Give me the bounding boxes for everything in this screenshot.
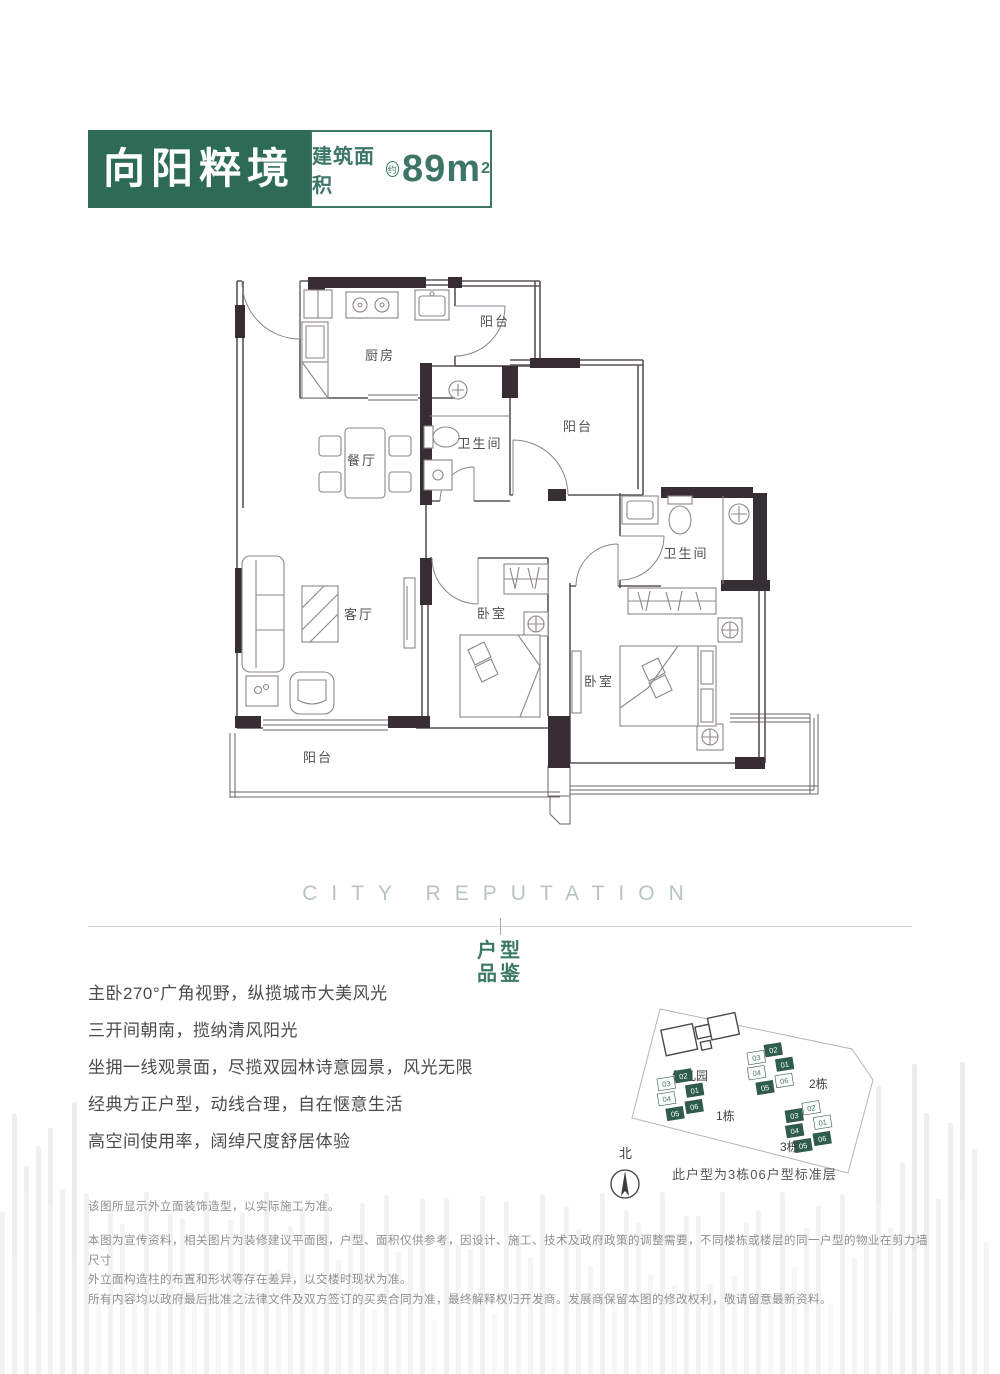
disclaimer-line: 所有内容均以政府最后批准之法律文件及双方签订的买卖合同为准，最终解释权归开发商。… <box>88 1291 938 1311</box>
svg-text:03: 03 <box>790 1111 800 1121</box>
dining-label: 餐厅 <box>347 453 377 468</box>
project-name-banner: 向阳粹境 <box>88 130 310 208</box>
bedroom2-furniture <box>572 588 742 750</box>
flyer-page: 向阳粹境 建筑面积 约 89m 2 <box>0 0 1000 1374</box>
english-subtitle: CITY REPUTATION <box>0 882 1000 906</box>
floor-plan: 厨房 阳台 卫生间 餐厅 阳台 卫生间 客厅 卧室 卧室 阳台 <box>218 268 838 843</box>
bedroom1-furniture <box>460 564 548 717</box>
north-label: 北 <box>619 1146 632 1161</box>
section-tag-bottom: 品鉴 <box>440 963 560 986</box>
disclaimer-line1: 该图所显示外立面装饰造型，以实际施工为准。 <box>88 1198 340 1214</box>
disclaimer-paragraph: 本图为宣传资料，相关图片为装修建议平面图，户型、面积仅供参考，因设计、施工、技术… <box>88 1232 938 1310</box>
svg-text:05: 05 <box>670 1109 680 1119</box>
building3-label: 3栋 <box>780 1139 799 1154</box>
section-tag: 户型 品鉴 <box>440 940 560 986</box>
feature-item: 经典方正户型，动线合理，自在惬意生活 <box>88 1096 568 1113</box>
svg-text:01: 01 <box>780 1060 790 1070</box>
svg-text:02: 02 <box>679 1071 689 1081</box>
section-tag-top: 户型 <box>440 940 560 963</box>
svg-text:03: 03 <box>662 1079 672 1089</box>
building2-cluster: 03 02 04 01 05 06 <box>744 1041 797 1096</box>
svg-text:04: 04 <box>790 1126 800 1136</box>
balcony-mid-label: 阳台 <box>563 419 593 434</box>
kitchen-label: 厨房 <box>365 348 395 363</box>
skyline-decoration-left <box>0 1080 96 1374</box>
compass-needle-icon <box>621 1171 629 1196</box>
svg-text:04: 04 <box>662 1094 672 1104</box>
svg-text:01: 01 <box>818 1118 828 1128</box>
floor-plan-drawing: 厨房 阳台 卫生间 餐厅 阳台 卫生间 客厅 卧室 卧室 阳台 <box>218 268 838 843</box>
living-label: 客厅 <box>344 607 374 622</box>
kindergarten-footprint <box>660 1013 741 1058</box>
svg-text:06: 06 <box>817 1134 827 1144</box>
feature-item: 坐拥一线观景面，尽揽双园林诗意园景，风光无限 <box>88 1059 568 1076</box>
svg-text:02: 02 <box>807 1103 817 1113</box>
divider-tick <box>500 918 501 935</box>
disclaimer-line: 本图为宣传资料，相关图片为装修建议平面图，户型、面积仅供参考，因设计、施工、技术… <box>88 1232 938 1271</box>
area-exponent: 2 <box>481 161 490 177</box>
north-indicator: 北 <box>600 1142 660 1212</box>
balcony-bottom-label: 阳台 <box>303 750 333 765</box>
feature-item: 主卧270°广角视野，纵揽城市大美风光 <box>88 985 568 1002</box>
building2-label: 2栋 <box>809 1076 828 1091</box>
bathroom1-label: 卫生间 <box>457 436 502 451</box>
svg-text:06: 06 <box>689 1102 699 1112</box>
svg-text:06: 06 <box>779 1076 789 1086</box>
feature-item: 高空间使用率，阔绰尺度舒居体验 <box>88 1133 568 1150</box>
bathroom2-label: 卫生间 <box>663 546 708 561</box>
approx-circle-glyph: 约 <box>386 161 399 177</box>
building-area-badge: 建筑面积 约 89m 2 <box>310 130 492 208</box>
svg-text:02: 02 <box>769 1045 779 1055</box>
project-title: 向阳粹境 <box>103 148 295 190</box>
unit-location-caption: 此户型为3栋06户型标准层 <box>672 1164 837 1183</box>
svg-text:03: 03 <box>752 1053 762 1063</box>
svg-text:05: 05 <box>760 1083 770 1093</box>
svg-text:01: 01 <box>690 1086 700 1096</box>
bedroom1-label: 卧室 <box>477 606 507 621</box>
balcony-top-label: 阳台 <box>480 314 510 329</box>
disclaimer-line: 外立面构造柱的布置和形状等存在差异，以交楼时现状为准。 <box>88 1271 938 1291</box>
living-room-furniture <box>242 556 415 714</box>
building1-label: 1栋 <box>716 1108 735 1123</box>
bathroom2-fixtures <box>622 496 749 584</box>
feature-item: 三开间朝南，揽纳清风阳光 <box>88 1022 568 1039</box>
svg-text:05: 05 <box>798 1141 808 1151</box>
area-value: 89m <box>402 150 481 188</box>
area-label: 建筑面积 <box>312 140 381 198</box>
svg-text:04: 04 <box>752 1068 762 1078</box>
bedroom2-label: 卧室 <box>584 674 614 689</box>
feature-list: 主卧270°广角视野，纵揽城市大美风光 三开间朝南，揽纳清风阳光 坐拥一线观景面… <box>88 985 568 1170</box>
